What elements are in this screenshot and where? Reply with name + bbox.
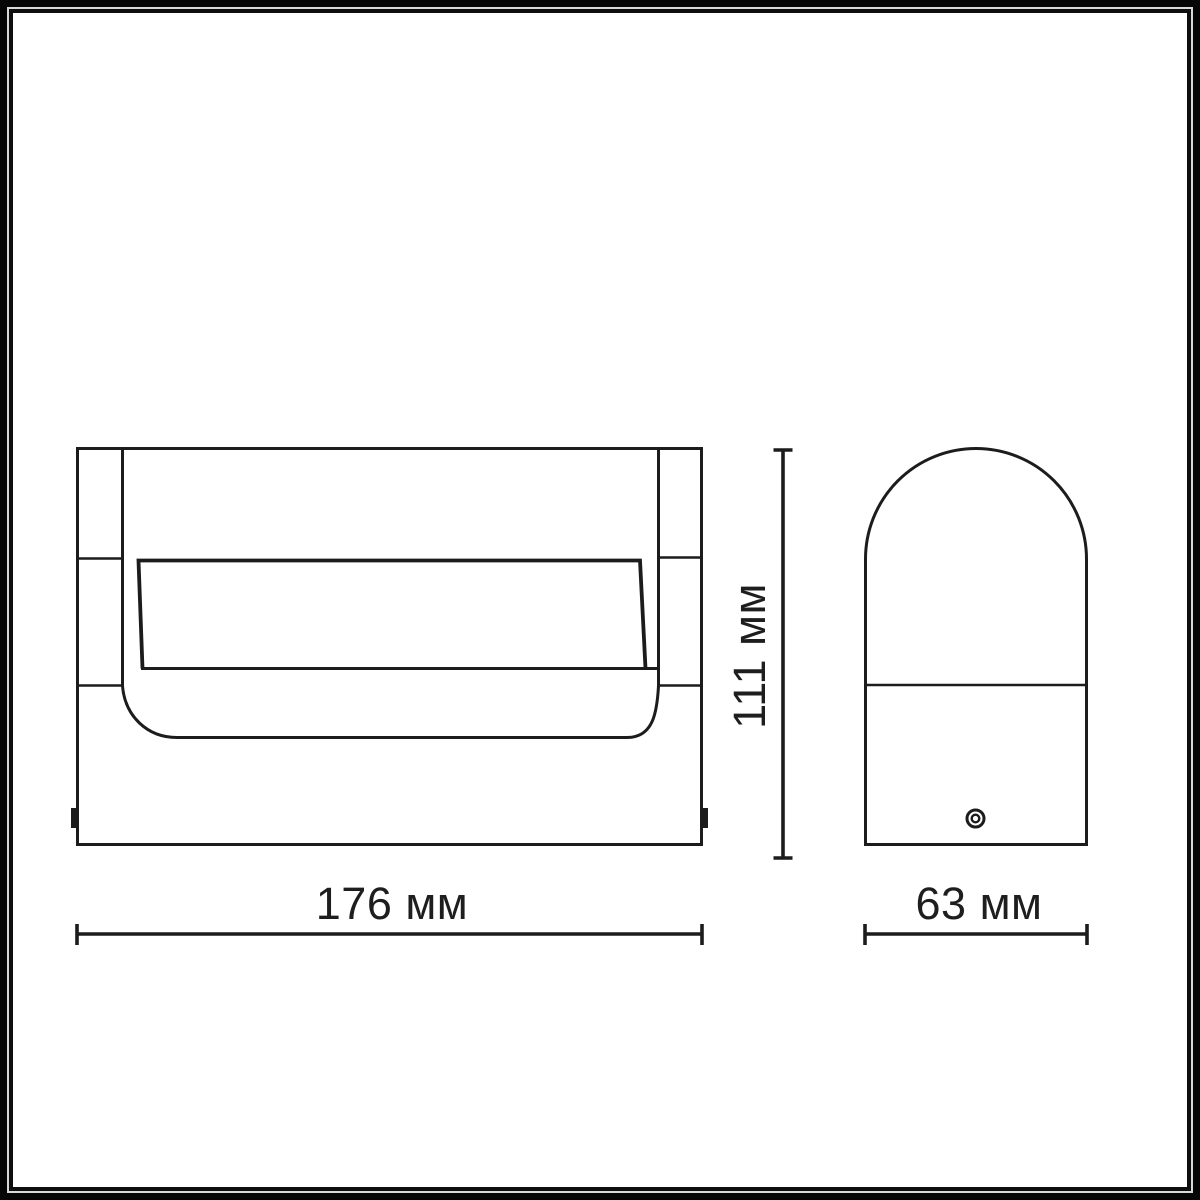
screw-icon xyxy=(967,810,984,827)
swivel-bottom-curve xyxy=(123,686,659,738)
right-mount-tab xyxy=(701,808,708,828)
dimension-width: 176 мм xyxy=(77,878,702,945)
height-label: 111 мм xyxy=(724,583,775,729)
technical-drawing: 176 мм 111 мм 63 мм xyxy=(0,0,1200,1200)
dimension-depth: 63 мм xyxy=(865,878,1087,945)
side-body-outline xyxy=(866,449,1087,845)
width-label: 176 мм xyxy=(316,878,468,929)
drawing-canvas: 176 мм 111 мм 63 мм xyxy=(0,0,1200,1200)
lens-panel xyxy=(139,561,646,669)
left-mount-tab xyxy=(71,808,78,828)
side-view xyxy=(866,449,1087,845)
front-body-outline xyxy=(78,449,702,845)
front-view xyxy=(71,449,708,845)
depth-label: 63 мм xyxy=(916,878,1043,929)
screw-center-icon xyxy=(972,815,980,823)
dimension-height: 111 мм xyxy=(724,450,793,858)
